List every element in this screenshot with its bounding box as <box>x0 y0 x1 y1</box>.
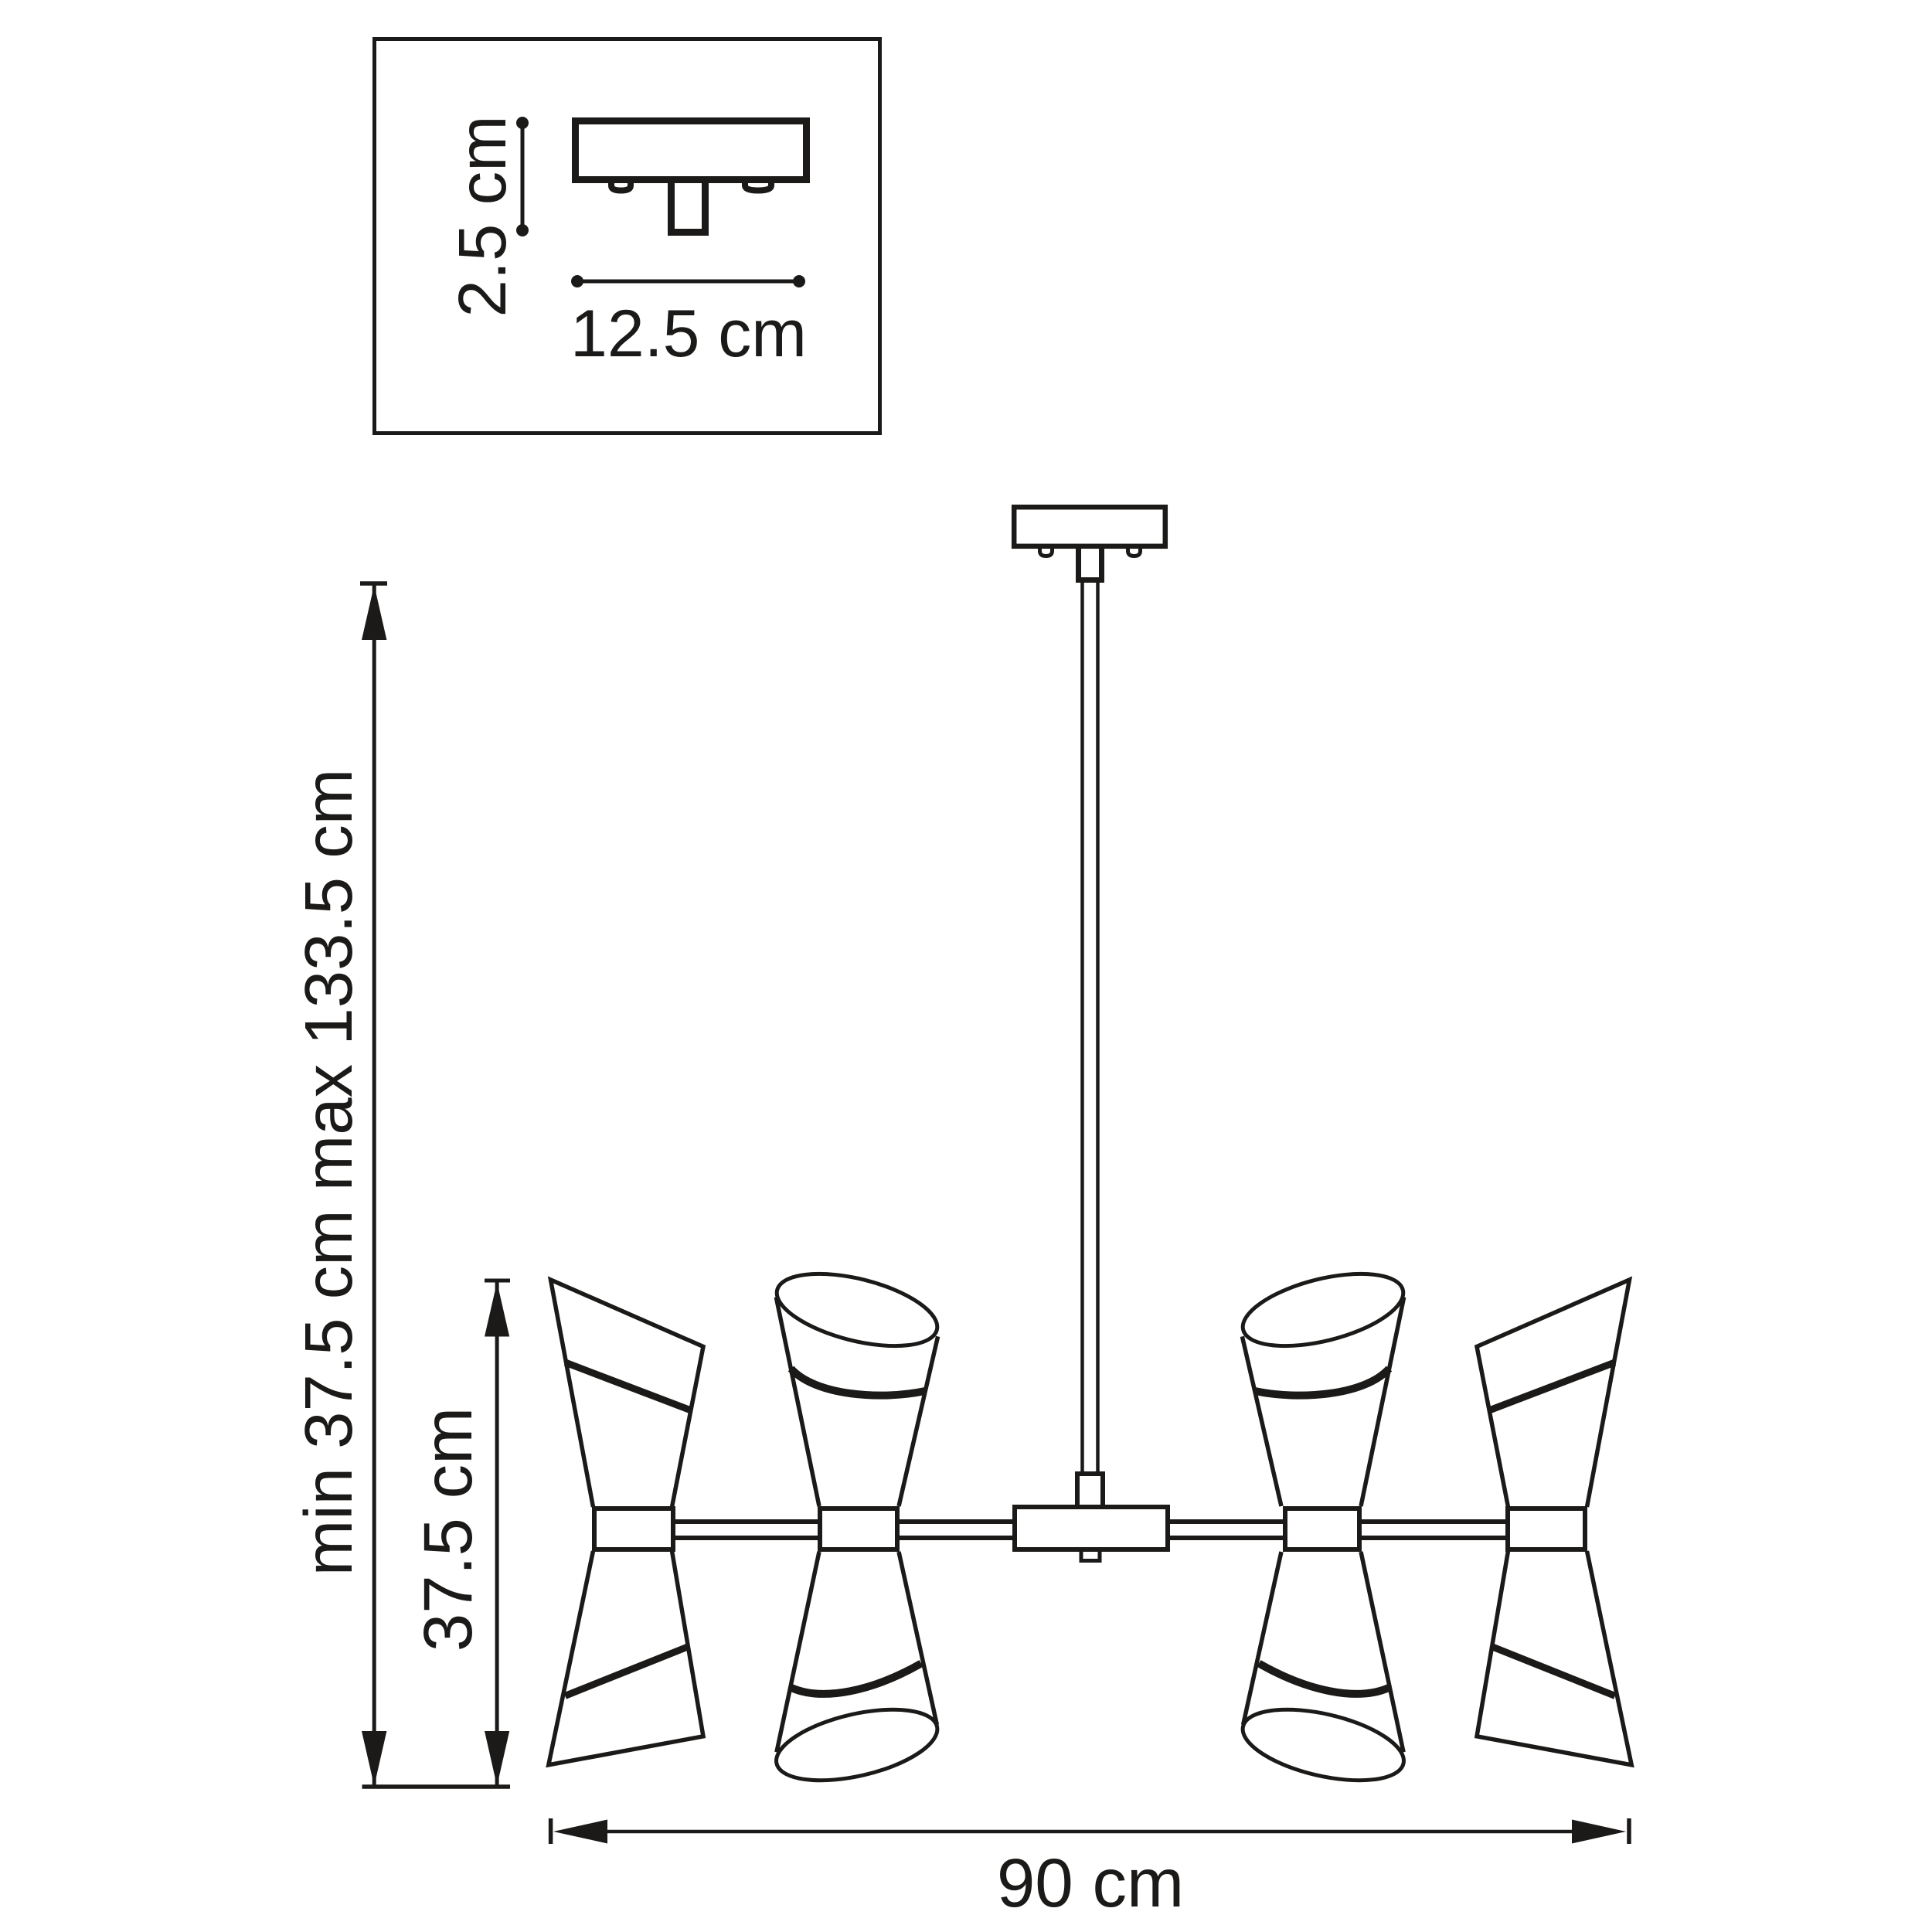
svg-text:37.5 cm: 37.5 cm <box>409 1407 486 1652</box>
svg-text:min 37.5 cm max 133.5 cm: min 37.5 cm max 133.5 cm <box>291 769 366 1576</box>
svg-text:2.5 cm: 2.5 cm <box>445 115 520 317</box>
svg-text:90 cm: 90 cm <box>997 1844 1184 1921</box>
svg-text:12.5 cm: 12.5 cm <box>570 297 807 371</box>
